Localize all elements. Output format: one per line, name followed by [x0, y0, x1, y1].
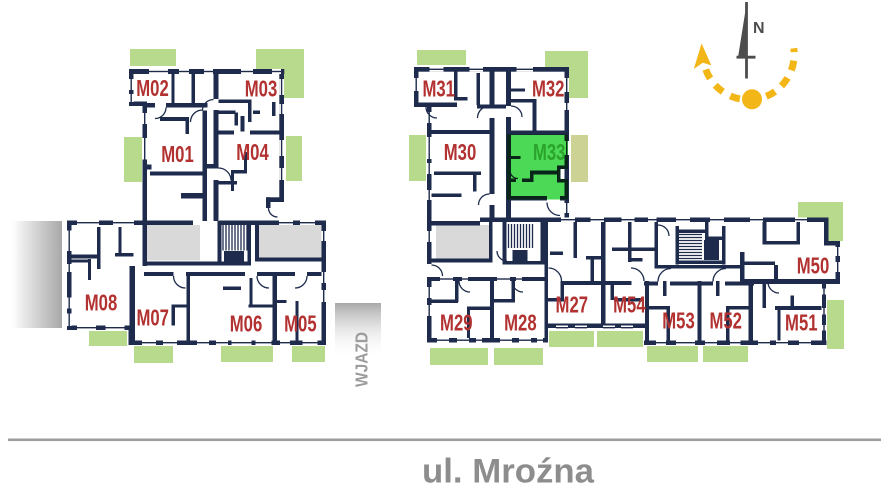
svg-text:M53: M53 [662, 308, 695, 334]
svg-text:ul. Mroźna: ul. Mroźna [422, 453, 595, 491]
svg-text:M02: M02 [136, 75, 169, 101]
svg-text:M54: M54 [613, 291, 646, 317]
svg-text:M29: M29 [440, 310, 473, 336]
svg-text:M31: M31 [422, 76, 455, 102]
svg-text:M06: M06 [230, 311, 263, 337]
svg-text:M33: M33 [533, 139, 566, 165]
svg-text:WJAZD: WJAZD [352, 332, 372, 387]
svg-text:M05: M05 [284, 311, 317, 337]
svg-text:M03: M03 [245, 76, 278, 102]
svg-text:M28: M28 [504, 310, 537, 336]
svg-text:M52: M52 [709, 308, 742, 334]
svg-text:M30: M30 [444, 139, 477, 165]
svg-text:M01: M01 [161, 141, 194, 167]
svg-text:M07: M07 [136, 304, 169, 330]
svg-text:N: N [753, 20, 765, 37]
svg-text:M50: M50 [797, 253, 830, 279]
svg-text:M51: M51 [785, 309, 818, 335]
svg-text:M27: M27 [556, 291, 589, 317]
svg-text:M08: M08 [85, 289, 118, 315]
svg-text:M32: M32 [532, 76, 565, 102]
svg-text:M04: M04 [236, 139, 269, 165]
